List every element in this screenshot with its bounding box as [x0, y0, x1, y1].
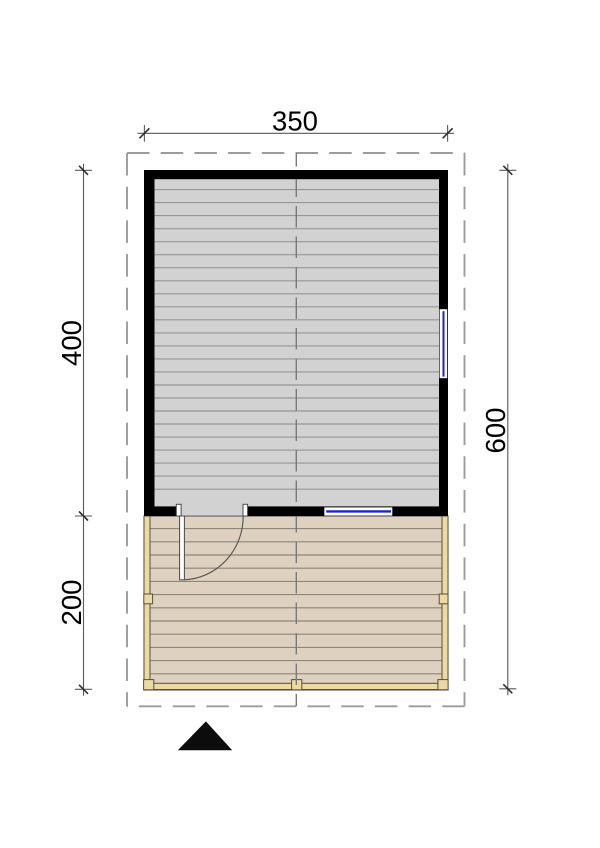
svg-text:600: 600 [480, 408, 511, 454]
svg-text:200: 200 [56, 580, 87, 626]
svg-text:400: 400 [56, 320, 87, 366]
svg-text:350: 350 [272, 106, 318, 137]
